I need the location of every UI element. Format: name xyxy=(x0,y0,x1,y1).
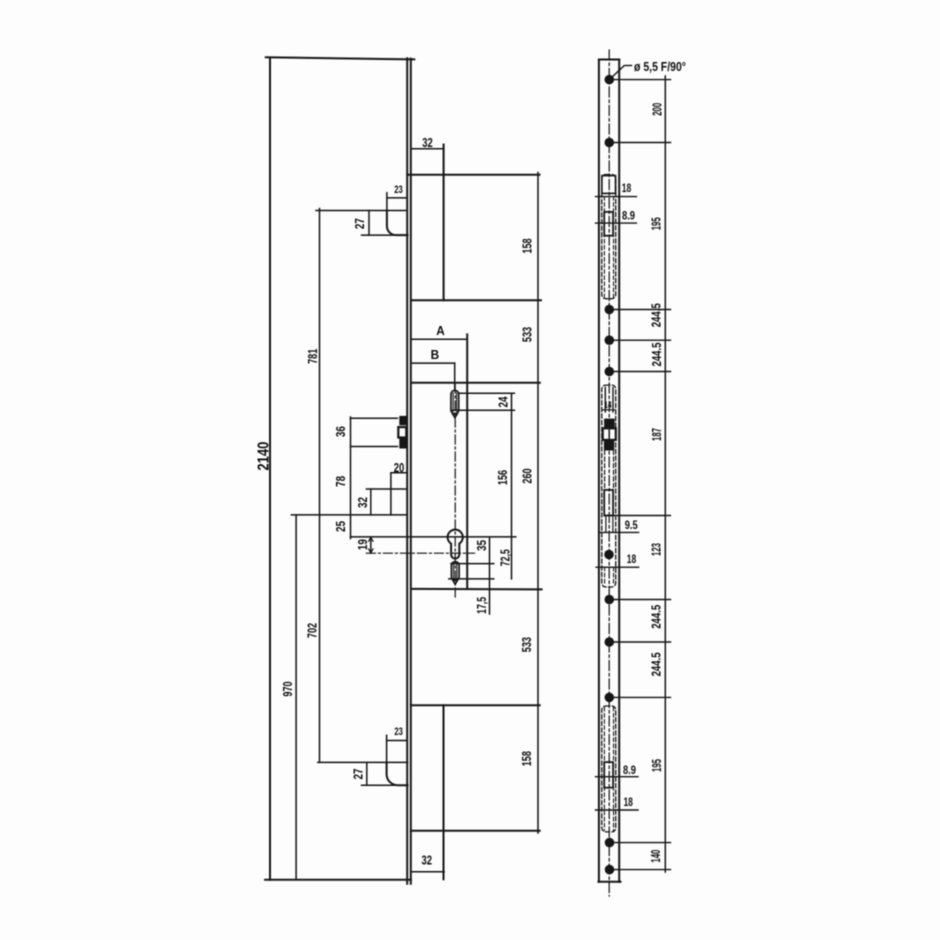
svg-text:533: 533 xyxy=(519,327,534,342)
svg-text:18: 18 xyxy=(627,552,637,566)
svg-text:18: 18 xyxy=(623,795,633,809)
svg-text:72,5: 72,5 xyxy=(497,549,512,566)
svg-text:244.5: 244.5 xyxy=(649,303,664,327)
svg-text:20: 20 xyxy=(394,460,405,475)
svg-text:2140: 2140 xyxy=(256,442,273,471)
svg-text:158: 158 xyxy=(519,238,534,253)
svg-text:14: 14 xyxy=(604,400,612,411)
svg-text:32: 32 xyxy=(422,135,433,150)
svg-text:ø 5,5 F/90°: ø 5,5 F/90° xyxy=(634,60,686,74)
svg-text:195: 195 xyxy=(649,759,664,772)
svg-text:B: B xyxy=(431,347,440,362)
svg-text:A: A xyxy=(436,323,445,338)
svg-text:702: 702 xyxy=(304,623,319,638)
svg-text:533: 533 xyxy=(519,637,534,652)
svg-text:19: 19 xyxy=(355,539,370,550)
svg-text:140: 140 xyxy=(648,850,663,863)
svg-text:35: 35 xyxy=(474,540,489,551)
svg-text:244.5: 244.5 xyxy=(649,605,664,629)
svg-text:970: 970 xyxy=(280,681,295,696)
svg-text:156: 156 xyxy=(495,470,510,485)
svg-text:27: 27 xyxy=(352,218,367,229)
svg-text:25: 25 xyxy=(333,521,348,532)
svg-text:260: 260 xyxy=(519,468,534,483)
svg-text:195: 195 xyxy=(649,217,664,230)
svg-text:23: 23 xyxy=(394,726,403,738)
svg-text:244.5: 244.5 xyxy=(649,343,664,367)
svg-text:32: 32 xyxy=(355,497,370,508)
svg-text:23: 23 xyxy=(394,184,403,196)
svg-text:158: 158 xyxy=(519,751,534,766)
svg-text:244.5: 244.5 xyxy=(649,652,664,676)
svg-text:36: 36 xyxy=(333,426,348,437)
svg-text:781: 781 xyxy=(305,349,320,364)
svg-text:187: 187 xyxy=(649,428,664,441)
svg-text:17,5: 17,5 xyxy=(474,597,489,614)
svg-text:78: 78 xyxy=(333,476,348,487)
svg-text:18: 18 xyxy=(622,181,632,195)
svg-text:32: 32 xyxy=(422,853,433,868)
svg-text:24: 24 xyxy=(495,396,510,408)
svg-text:123: 123 xyxy=(649,543,664,556)
svg-text:8.9: 8.9 xyxy=(622,209,635,223)
svg-text:200: 200 xyxy=(650,103,665,116)
svg-text:9.5: 9.5 xyxy=(625,518,638,532)
svg-text:8.9: 8.9 xyxy=(623,763,636,777)
svg-text:27: 27 xyxy=(351,769,366,780)
